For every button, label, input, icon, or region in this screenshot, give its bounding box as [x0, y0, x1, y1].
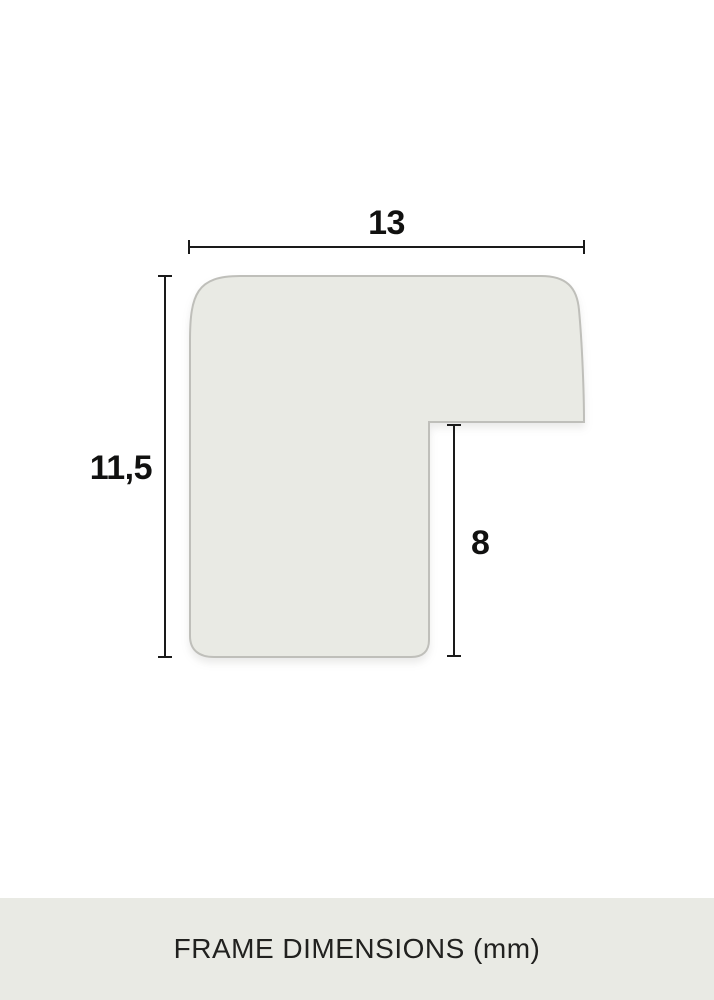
height-dimension-tick-top	[158, 275, 172, 277]
width-dimension-tick-right	[583, 240, 585, 254]
rabbet-dimension-tick-bottom	[447, 655, 461, 657]
height-dimension: 11,5	[158, 275, 172, 658]
footer-caption-bar: FRAME DIMENSIONS (mm)	[0, 898, 714, 1000]
width-dimension-line	[188, 246, 585, 248]
width-dimension-tick-left	[188, 240, 190, 254]
rabbet-dimension-line	[453, 424, 455, 657]
frame-profile-outline	[190, 276, 584, 657]
footer-caption: FRAME DIMENSIONS (mm)	[174, 935, 541, 963]
frame-profile-diagram: 13 11,5 8	[0, 0, 714, 898]
width-dimension: 13	[188, 240, 585, 254]
rabbet-dimension-label: 8	[471, 526, 489, 560]
height-dimension-label: 11,5	[90, 451, 152, 485]
height-dimension-tick-bottom	[158, 656, 172, 658]
height-dimension-line	[164, 275, 166, 658]
rabbet-height-dimension: 8	[447, 424, 461, 657]
width-dimension-label: 13	[188, 206, 585, 240]
frame-dimensions-page: 13 11,5 8 FRAME DIMENSIONS (mm)	[0, 0, 714, 1000]
rabbet-dimension-tick-top	[447, 424, 461, 426]
